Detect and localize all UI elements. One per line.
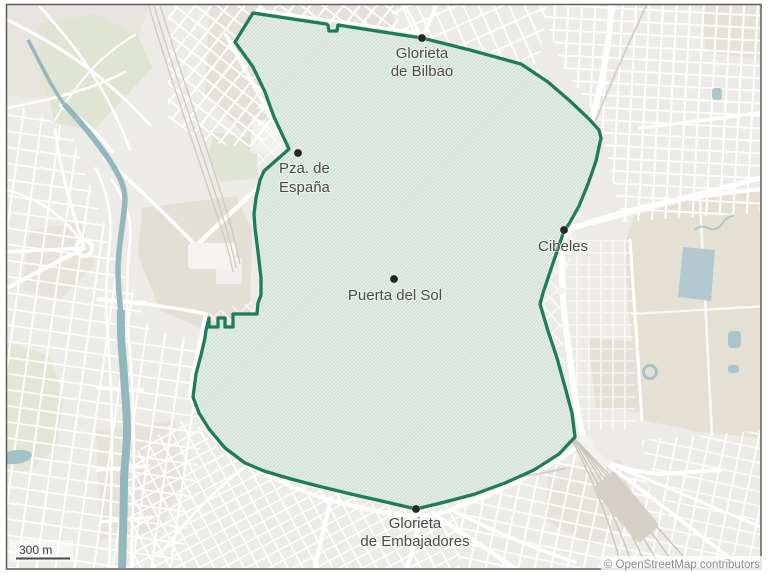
svg-text:España: España bbox=[279, 179, 331, 196]
svg-text:Glorieta: Glorieta bbox=[389, 515, 442, 532]
svg-text:Cibeles: Cibeles bbox=[538, 238, 588, 255]
svg-text:© OpenStreetMap contributors: © OpenStreetMap contributors bbox=[604, 559, 760, 571]
svg-text:300 m: 300 m bbox=[19, 543, 52, 557]
svg-text:Pza. de: Pza. de bbox=[279, 160, 330, 177]
svg-text:de Embajadores: de Embajadores bbox=[360, 533, 469, 550]
svg-text:de Bilbao: de Bilbao bbox=[391, 63, 454, 80]
svg-text:Puerta del Sol: Puerta del Sol bbox=[348, 287, 442, 304]
svg-text:Glorieta: Glorieta bbox=[396, 45, 449, 62]
